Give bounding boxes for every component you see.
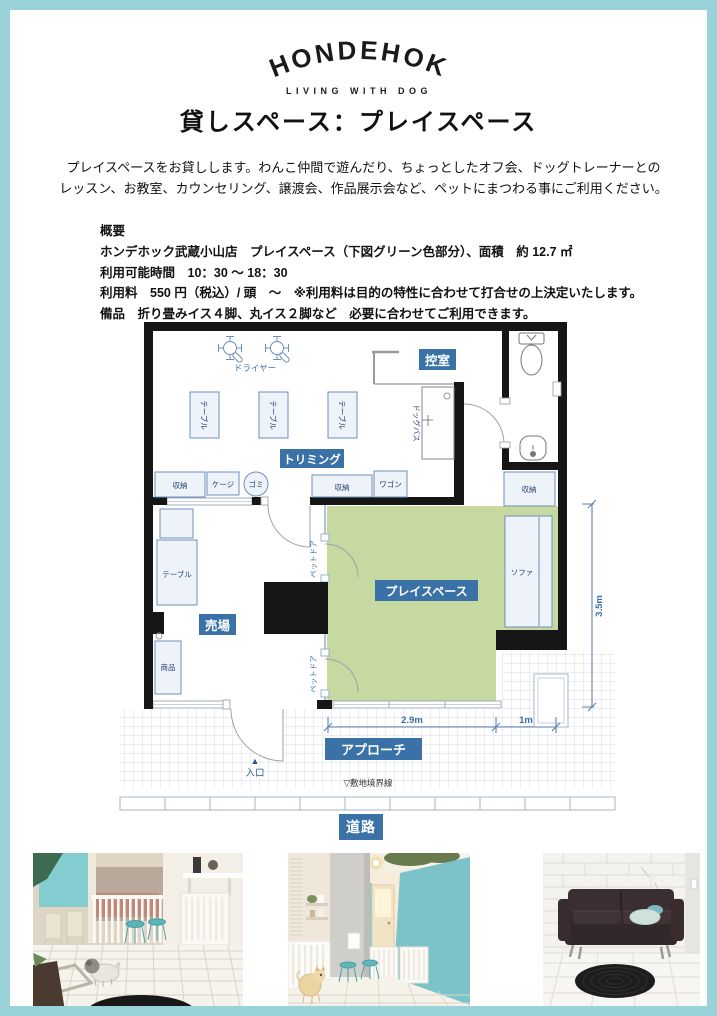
dog-bath-label: ドッグバス	[412, 404, 422, 442]
dog-bath: ドッグバス	[412, 387, 454, 459]
dryer-icons	[219, 337, 291, 364]
planter	[534, 674, 568, 727]
sidewalk	[120, 797, 615, 810]
table-label: テーブル	[162, 569, 192, 579]
approach-label: アプローチ	[341, 743, 406, 758]
dim-height-label: 3.5m	[594, 595, 605, 617]
photo-play-area-dog	[33, 853, 243, 1011]
storage-right: 収納	[504, 472, 555, 506]
wall-box	[348, 933, 360, 949]
overview-heading: 概要	[100, 221, 660, 242]
pillar	[264, 582, 328, 634]
intro-paragraph: プレイスペースをお貸しします。わんこ仲間で遊んだり、ちょっとしたオフ会、ドッグト…	[48, 158, 679, 199]
sales-floor-label: 売場	[205, 618, 231, 633]
dryer-label: ドライヤー	[234, 363, 276, 373]
cage-label: ケージ	[212, 480, 235, 489]
dryer-icon	[219, 337, 244, 364]
sink-icon	[520, 436, 546, 460]
products-label: 商品	[161, 662, 176, 672]
pet-door-label: ペットドア	[309, 540, 318, 578]
storage-label: 収納	[335, 482, 350, 492]
brand-arc-text: HONDEHOK	[265, 35, 453, 83]
sales-table: テーブル	[157, 509, 197, 605]
products-shelf: 商品	[155, 633, 181, 694]
white-gate	[181, 893, 229, 945]
wall-switch	[691, 879, 697, 889]
overview-store-line: ホンデホック武蔵小山店 プレイスペース（下図グリーン色部分）、面積 約 12.7…	[100, 242, 660, 263]
photo-entrance-gates	[288, 853, 470, 1011]
dryer-icon	[266, 337, 291, 364]
floor-plan: ペットドア ペットドア	[115, 312, 620, 812]
intro-line-1: プレイスペースをお貸しします。わんこ仲間で遊んだり、ちょっとしたオフ会、ドッグト…	[48, 158, 679, 179]
table-label: テーブル	[200, 400, 210, 430]
road-label: 道路	[339, 814, 383, 840]
entrance-marker-icon: ▲	[251, 756, 260, 766]
dim-width-label: 2.9m	[401, 715, 423, 726]
entrance-label: 入口	[245, 768, 264, 779]
trash-label: ゴミ	[249, 479, 264, 489]
photo-sofa-corner	[543, 853, 700, 1011]
black-rug	[575, 964, 655, 998]
wagon-label: ワゴン	[379, 479, 402, 489]
page-title: 貸しスペース：プレイスペース	[10, 102, 707, 137]
table-label: テーブル	[338, 400, 348, 430]
boundary-label: ▽敷地境界線	[343, 778, 393, 788]
storage-label: 収納	[173, 480, 188, 490]
storage-label: 収納	[522, 484, 537, 494]
mint-round-cushion	[630, 910, 660, 925]
back-door	[372, 885, 394, 955]
waiting-room-label: 控室	[425, 353, 451, 368]
overview-hours-line: 利用可能時間 10：30 ～ 18：30	[100, 263, 660, 284]
sofa: ソファ	[505, 516, 552, 627]
trimming-label: トリミング	[283, 453, 341, 467]
table-label: テーブル	[269, 400, 279, 430]
brand-logo: HONDEHOK LIVING WITH DOG	[229, 30, 489, 103]
flyer-page: HONDEHOK LIVING WITH DOG 貸しスペース：プレイスペース …	[0, 0, 717, 1016]
pet-door-label: ペットドア	[309, 655, 318, 693]
play-space-label: プレイスペース	[385, 584, 467, 599]
overview-fee-line: 利用料 550 円（税込）/ 頭 ～ ※利用料は目的の特性に合わせて打合せの上決…	[100, 283, 660, 304]
storage-row: 収納 ケージ ゴミ 収納 ワゴン	[155, 471, 407, 497]
brand-tagline: LIVING WITH DOG	[286, 86, 432, 96]
intro-line-2: レッスン、お教室、カウンセリング、譲渡会、作品展示会など、ペットにまつわる事にご…	[48, 179, 679, 200]
sofa-label: ソファ	[511, 568, 534, 577]
toilet-icon	[519, 333, 544, 375]
dim-nook-label: 1m	[519, 715, 533, 726]
trimming-tables: テーブル テーブル テーブル	[190, 392, 357, 438]
overview-block: 概要 ホンデホック武蔵小山店 プレイスペース（下図グリーン色部分）、面積 約 1…	[100, 221, 660, 325]
